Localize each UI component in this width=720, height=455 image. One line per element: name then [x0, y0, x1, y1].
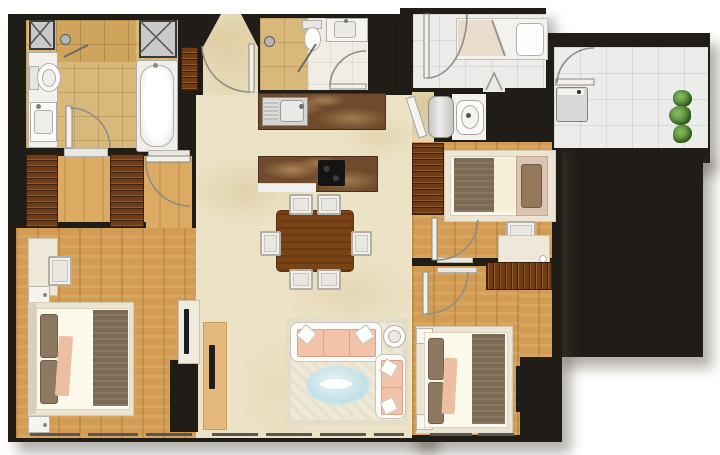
- bedroom2-wardrobe-tall: [412, 143, 444, 215]
- window-slit: [146, 433, 192, 436]
- drawer-knob: [43, 293, 47, 297]
- living-tv-cabinet: [203, 322, 227, 430]
- round-side-table-top: [388, 330, 401, 343]
- sofa-cushion: [323, 329, 350, 357]
- shower-head: [60, 34, 71, 45]
- wall-right-mass: [552, 148, 703, 357]
- window-slit: [266, 433, 312, 436]
- master-bed-headboard: [28, 302, 36, 414]
- dining-chair: [289, 194, 313, 215]
- toilet2-bowl: [304, 27, 321, 51]
- window-slit: [212, 433, 258, 436]
- kitchen-sink-drainboard: [264, 100, 278, 120]
- nightstand: [28, 286, 50, 303]
- service-shaft-small: [29, 20, 55, 50]
- living-tv: [209, 345, 215, 389]
- sink-faucet-dot: [36, 104, 41, 109]
- drawer-knob: [43, 423, 47, 427]
- window-slit: [374, 433, 404, 436]
- bedroom3-blanket: [472, 334, 505, 424]
- service-shaft-large: [139, 20, 177, 58]
- bedroom3-tv: [516, 366, 522, 412]
- bathtub-faucet-dot: [153, 63, 158, 68]
- bathroom-sink-basin: [34, 110, 53, 134]
- bedroom2-door-threshold: [437, 257, 473, 263]
- washing-machine-dial: [577, 90, 581, 94]
- potted-plant: [669, 106, 691, 125]
- shower-head-2: [264, 36, 275, 47]
- master-bedroom-niche-wall: [170, 360, 198, 432]
- dining-chair: [351, 231, 372, 256]
- foyer-cabinet: [181, 47, 198, 91]
- window-slit: [478, 433, 514, 436]
- bedroom2-wardrobe-low: [486, 262, 552, 290]
- bed-pillow: [40, 314, 58, 358]
- dining-table: [276, 210, 354, 272]
- window-slit: [88, 433, 138, 436]
- dining-chair: [317, 269, 341, 290]
- window-slit: [430, 433, 472, 436]
- coffee-table-center-tray: [320, 379, 352, 389]
- master-tv-console: [178, 300, 200, 364]
- bifold-door-gap: [483, 70, 505, 92]
- wc-toilet-drain-dot: [466, 113, 471, 118]
- water-heater-tank: [428, 96, 454, 138]
- kitchen-faucet-dot: [299, 104, 304, 109]
- master-tv: [184, 309, 189, 354]
- toilet-bowl-inner: [42, 69, 56, 87]
- bedroom2-pillow: [521, 164, 542, 208]
- bedroom2-sheet: [494, 158, 516, 212]
- wardrobe-right: [110, 154, 144, 228]
- vanity2-faucet-dot: [344, 19, 348, 23]
- master-desk-chair: [48, 256, 72, 286]
- window-slit: [320, 433, 366, 436]
- bathroom-door-threshold: [64, 148, 108, 157]
- potted-plant: [673, 90, 692, 107]
- dining-chair: [317, 194, 341, 215]
- dining-chair: [260, 231, 281, 256]
- island-white-ledge: [258, 183, 316, 192]
- window-slit: [30, 433, 80, 436]
- shower3-basin: [516, 23, 544, 56]
- cooktop: [318, 160, 345, 186]
- chair-seat: [52, 260, 68, 282]
- bed-blanket: [93, 310, 128, 406]
- dining-chair: [289, 269, 313, 290]
- bathtub: [140, 65, 174, 147]
- bathroom2-shower-floor: [260, 18, 308, 90]
- bedroom3-pillow: [428, 338, 444, 380]
- wardrobe-left: [26, 154, 58, 228]
- vanity2-basin: [334, 21, 356, 38]
- closet-door-threshold: [148, 150, 190, 158]
- foyer-floor: [203, 14, 258, 96]
- bedroom2-blanket: [454, 158, 494, 212]
- bedroom3-door-threshold: [437, 267, 477, 273]
- floor-plan-canvas: [0, 0, 720, 455]
- nightstand: [28, 416, 50, 433]
